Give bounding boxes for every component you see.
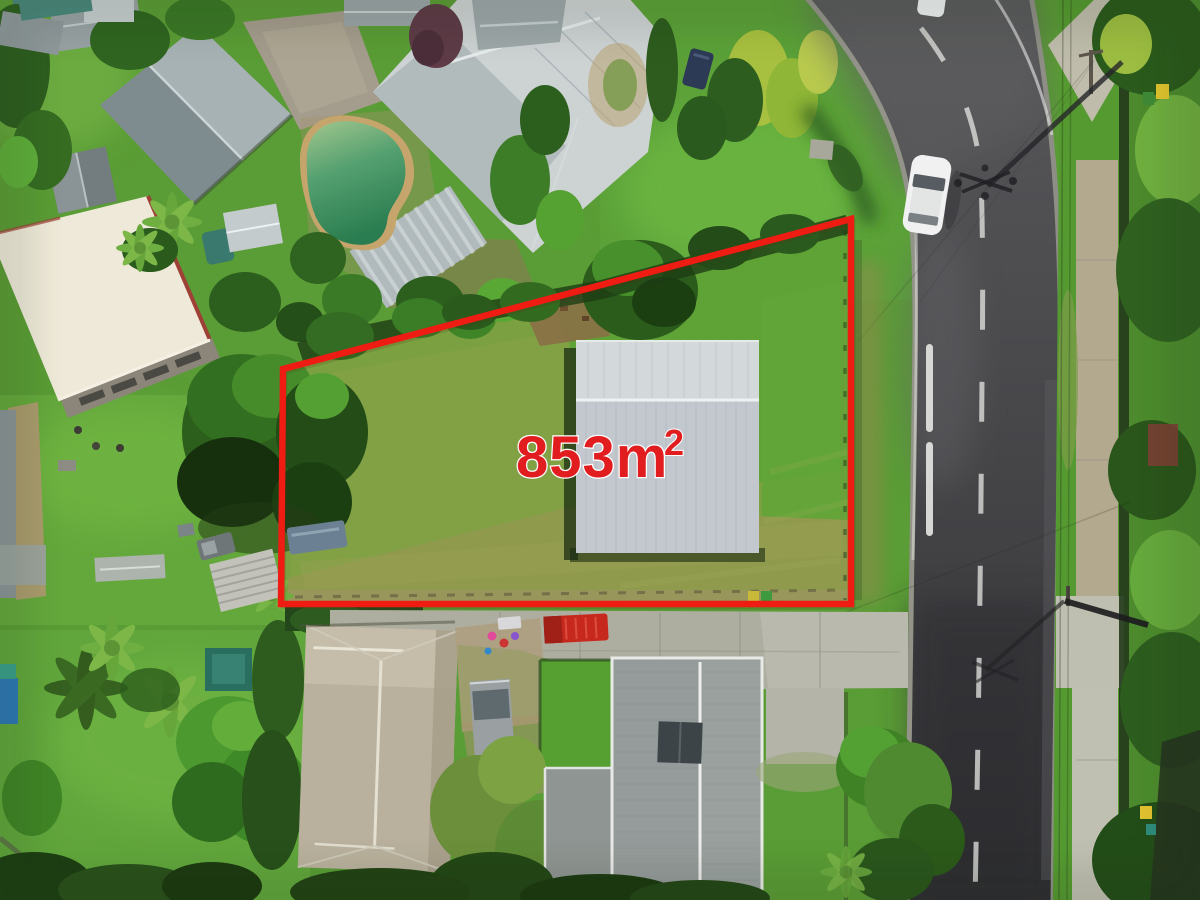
svg-text:853m: 853m xyxy=(516,425,668,490)
svg-text:2: 2 xyxy=(664,422,684,463)
